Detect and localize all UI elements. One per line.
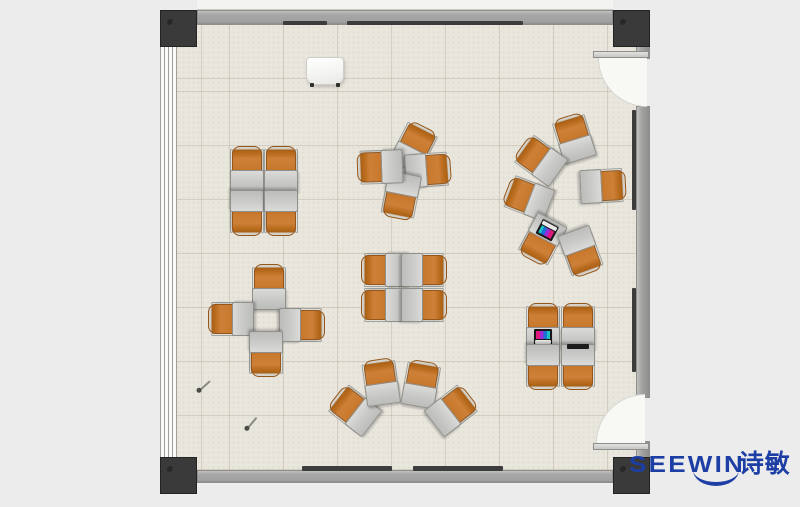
desk-chair-unit-quad-nw — [230, 146, 264, 192]
desk — [230, 190, 264, 212]
desk-chair-unit-quad-se — [526, 303, 560, 349]
desk — [252, 288, 286, 310]
chair — [251, 349, 281, 377]
floor-plan-canvas: SEEWIN 诗敏 — [0, 0, 800, 507]
pointer-stick — [246, 417, 257, 430]
whiteboard-caster — [336, 83, 340, 87]
whiteboard-caster — [310, 83, 314, 87]
desk-chair-unit-circle-e — [579, 168, 627, 204]
desk-chair-unit-quad-nw — [264, 190, 298, 236]
desk-chair-unit-quad-nw — [230, 190, 264, 236]
mobile-whiteboard — [306, 57, 344, 85]
chair — [232, 208, 262, 236]
laptop — [534, 329, 552, 345]
chair — [528, 362, 558, 390]
desk-chair-unit-cross-w — [279, 308, 325, 342]
desk-chair-unit-quad-c — [401, 253, 447, 287]
desk-chair-unit-cross-w — [249, 331, 283, 377]
desk — [579, 169, 603, 204]
desk-chair-unit-quad-c — [401, 288, 447, 322]
chair — [563, 362, 593, 390]
stick-tip — [243, 425, 250, 432]
desk-chair-unit-cross-w — [252, 264, 286, 310]
chair — [266, 208, 296, 236]
pointer-stick — [198, 380, 210, 392]
desk — [249, 331, 283, 353]
desk — [401, 288, 423, 322]
brand-chinese-name: 诗敏 — [739, 452, 791, 477]
chair — [297, 310, 325, 340]
desk-chair-unit-quad-se — [526, 344, 560, 390]
desk — [380, 149, 403, 184]
desk — [526, 344, 560, 366]
brand-logo: SEEWIN 诗敏 — [629, 452, 791, 477]
desk-chair-unit-pinwheel-n — [356, 149, 403, 185]
desk-chair-unit-circle-e — [557, 225, 605, 280]
desk — [364, 381, 401, 408]
laptop-screen — [536, 331, 550, 339]
tablet — [567, 344, 589, 349]
stick-tip — [196, 387, 203, 394]
desk-chair-unit-quad-nw — [264, 146, 298, 192]
desk-chair-unit-quad-se — [561, 303, 595, 349]
furniture-layer — [0, 0, 800, 507]
chair — [419, 255, 447, 285]
desk — [401, 253, 423, 287]
desk-chair-unit-quad-se — [561, 344, 595, 390]
desk — [230, 170, 264, 192]
desk — [264, 190, 298, 212]
chair — [419, 290, 447, 320]
desk — [264, 170, 298, 192]
desk-chair-unit-cross-w — [208, 302, 254, 336]
desk-chair-unit-fan-s — [361, 357, 401, 407]
